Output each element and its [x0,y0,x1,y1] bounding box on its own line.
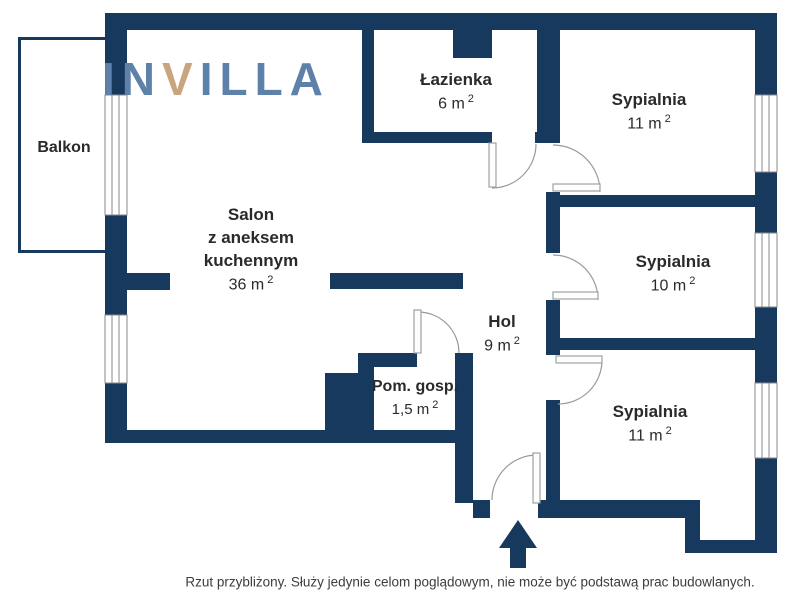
window-left-salon [105,95,127,215]
window-frame [755,233,777,307]
wall-right-1 [755,13,777,95]
door-arc-entrance [492,455,537,500]
room-name: Łazienka [420,69,492,92]
room-area-sup: 2 [468,93,474,105]
window-frame [105,315,127,383]
room-name: Sypialnia [612,89,687,112]
door-leaf-bathroom [489,143,496,187]
window-bedroom-3 [755,383,777,458]
room-area-value: 11 m [627,115,661,132]
wall-kitchen-stub-right [330,273,463,289]
room-name-line: z aneksem [204,227,298,250]
door-leaf-utility [414,310,421,353]
room-label-pom-gosp: Pom. gosp. 1,5 m2 [372,376,458,420]
room-name: Sypialnia [613,401,688,424]
logo-part-tan: V [162,53,200,105]
room-area: 1,5 m2 [372,398,458,420]
room-area-sup: 2 [432,399,438,411]
window-frame [105,95,127,215]
room-name: Balkon [37,139,90,156]
wall-bedroom-divider-2 [553,338,777,350]
wall-bottom-step [685,500,700,553]
room-label-lazienka: Łazienka 6 m2 [420,69,492,115]
wall-bathroom-bottom [362,132,492,143]
wall-bottom-entrance-left [473,500,490,518]
wall-right-3 [755,307,777,383]
wall-bottom-right [700,540,777,553]
wall-bathroom-left [362,30,374,143]
room-name-line: Salon [204,204,298,227]
room-area: 36 m2 [204,273,298,296]
wall-right-4 [755,458,777,553]
room-area-value: 11 m [628,427,662,444]
logo-part-blue-1: IN [102,53,162,105]
door-arc-bedroom-3 [558,360,602,404]
wall-bathroom-right [537,30,560,143]
window-left-salon-2 [105,315,127,383]
entrance-arrow-icon [499,520,537,568]
door-arc-bathroom [492,144,536,188]
wall-top [105,13,777,30]
room-name: Hol [484,311,520,334]
window-frame [755,95,777,172]
wall-kitchen-stub-left [125,273,170,290]
room-area-value: 36 m [229,276,265,293]
room-name: Pom. gosp. [372,376,458,398]
room-area-sup: 2 [514,335,520,347]
room-name: Sypialnia [636,251,711,274]
wall-utility-block [325,373,358,443]
room-label-hol: Hol 9 m2 [484,311,520,357]
wall-bottom-left [105,430,473,443]
room-label-sypialnia-1: Sypialnia 11 m2 [612,89,687,135]
wall-bedroom-divider-1 [553,195,777,207]
room-area: 10 m2 [636,274,711,297]
invilla-logo: INVILLA [102,52,330,106]
door-leaf-entrance [533,453,540,503]
window-bedroom-1 [755,95,777,172]
floor-plan: INVILLA Balkon Salon z aneksem kuchennym… [0,0,800,600]
door-arc-utility [418,312,459,353]
room-label-sypialnia-2: Sypialnia 10 m2 [636,251,711,297]
room-area: 6 m2 [420,92,492,115]
logo-part-blue-2: ILLA [200,53,330,105]
room-label-balkon: Balkon [37,137,90,159]
door-leaf-bedroom-3 [556,356,602,363]
room-label-sypialnia-3: Sypialnia 11 m2 [613,401,688,447]
room-name-line: kuchennym [204,250,298,273]
room-area-value: 9 m [484,337,511,354]
room-area-sup: 2 [666,425,672,437]
room-area-sup: 2 [665,113,671,125]
room-area-value: 6 m [438,95,465,112]
room-area-value: 1,5 m [392,401,430,418]
window-bedroom-2 [755,233,777,307]
room-area: 9 m2 [484,334,520,357]
room-area-sup: 2 [267,274,273,286]
door-leaf-bedroom-2 [553,292,598,299]
wall-bottom-entrance-right [538,500,700,518]
door-leaf-bedroom-1 [553,184,600,191]
room-area-value: 10 m [651,277,687,294]
window-frame [755,383,777,458]
room-area-sup: 2 [689,275,695,287]
disclaimer-text: Rzut przybliżony. Służy jedynie celom po… [185,575,754,590]
room-area: 11 m2 [613,424,688,447]
wall-right-2 [755,172,777,233]
room-label-salon: Salon z aneksem kuchennym 36 m2 [204,204,298,296]
duct-block [453,30,492,58]
room-area: 11 m2 [612,112,687,135]
